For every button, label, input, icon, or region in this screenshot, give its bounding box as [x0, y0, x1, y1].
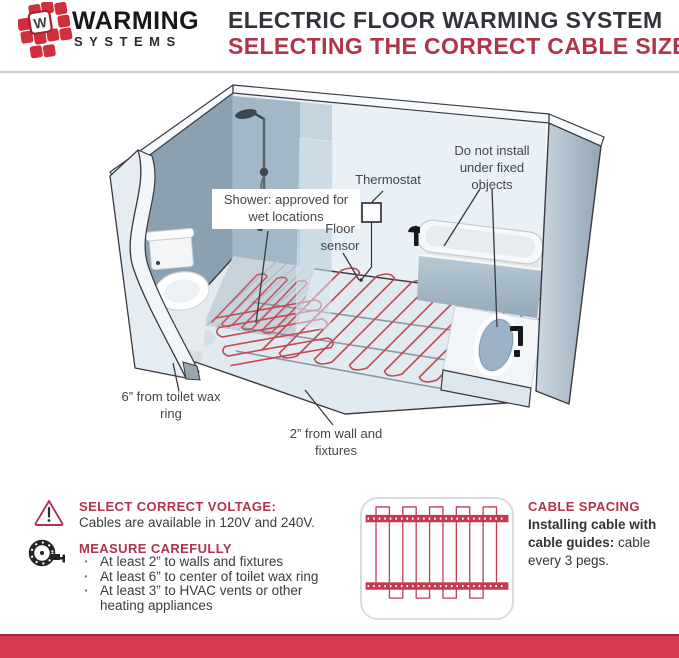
brand-logo-icon: W — [18, 2, 74, 60]
measure-bullet: At least 3” to HVAC vents or other heati… — [79, 584, 331, 613]
measure-bullet-list: At least 2” to walls and fixtures At lea… — [79, 555, 331, 613]
tape-measure-icon — [26, 538, 68, 572]
cable-guide-strip-bottom — [366, 582, 509, 589]
floor-sensor-dot — [359, 278, 363, 282]
label-toilet-clearance: 6” from toilet wax ring — [114, 389, 228, 423]
label-thermostat: Thermostat — [338, 172, 438, 189]
brand-subname: SYSTEMS — [74, 34, 182, 49]
measure-bullet: At least 6” to center of toilet wax ring — [79, 570, 331, 585]
voltage-body: Cables are available in 120V and 240V. — [79, 515, 315, 530]
cable-spacing-figure — [360, 497, 514, 620]
measure-bullet: At least 2” to walls and fixtures — [79, 555, 331, 570]
page-subtitle: SELECTING THE CORRECT CABLE SIZE — [228, 33, 679, 60]
voltage-title: SELECT CORRECT VOLTAGE: — [79, 499, 276, 514]
footer-band — [0, 634, 679, 658]
page-title: ELECTRIC FLOOR WARMING SYSTEM — [228, 7, 663, 34]
label-fixed-objects: Do not install under fixed objects — [442, 143, 542, 194]
spacing-body: Installing cable with cable guides: cabl… — [528, 516, 662, 569]
header: W WARMING SYSTEMS ELECTRIC FLOOR WARMING… — [0, 0, 679, 71]
brand-name: WARMING — [72, 7, 199, 36]
label-wall-clearance: 2” from wall and fixtures — [278, 426, 394, 460]
infographic-root: W WARMING SYSTEMS ELECTRIC FLOOR WARMING… — [0, 0, 679, 658]
cable-guide-strip-top — [366, 515, 509, 522]
spacing-title: CABLE SPACING — [528, 499, 640, 514]
logo-mosaic: W — [18, 2, 74, 60]
header-divider — [0, 71, 679, 73]
label-floor-sensor: Floor sensor — [312, 221, 368, 255]
warning-icon — [33, 498, 65, 528]
soaking-tub-deck — [441, 306, 544, 407]
cable-spacing-illustration — [362, 499, 512, 618]
bathroom-diagram — [0, 78, 679, 478]
